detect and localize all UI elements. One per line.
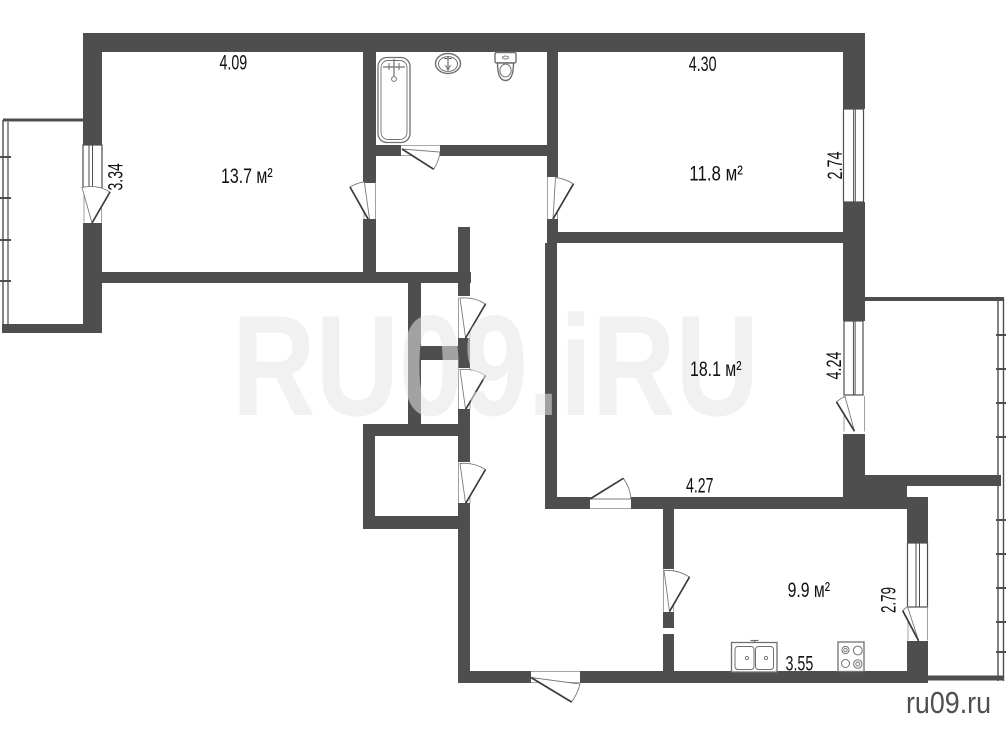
svg-text:2.74: 2.74 <box>824 151 847 179</box>
svg-text:3.34: 3.34 <box>105 163 128 191</box>
svg-text:4.24: 4.24 <box>823 351 846 379</box>
svg-text:11.8 м²: 11.8 м² <box>689 163 743 186</box>
svg-text:3.55: 3.55 <box>786 653 814 676</box>
svg-text:18.1 м²: 18.1 м² <box>690 358 742 381</box>
svg-text:2.79: 2.79 <box>878 587 901 613</box>
svg-text:13.7 м²: 13.7 м² <box>221 165 273 188</box>
svg-text:RU09.iRU: RU09.iRU <box>232 287 759 446</box>
svg-text:4.09: 4.09 <box>220 52 248 75</box>
svg-text:4.27: 4.27 <box>686 475 713 498</box>
svg-text:9.9 м²: 9.9 м² <box>788 579 830 602</box>
svg-text:ru09.ru: ru09.ru <box>906 686 991 720</box>
svg-text:4.30: 4.30 <box>689 53 717 76</box>
